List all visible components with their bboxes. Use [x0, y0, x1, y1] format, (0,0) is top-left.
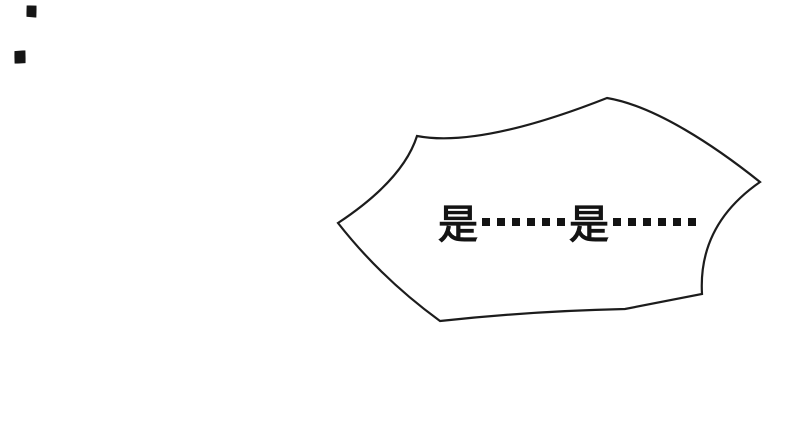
speech-word-second: 是: [569, 202, 609, 248]
ellipsis-dot: [673, 218, 681, 226]
ellipsis-dot: [482, 218, 490, 226]
ellipsis-dot: [628, 218, 636, 226]
ellipsis-dot: [613, 218, 621, 226]
ellipsis-dot: [512, 218, 520, 226]
ellipsis-dot: [557, 218, 565, 226]
ellipsis-dot: [643, 218, 651, 226]
ellipsis-dot: [688, 218, 696, 226]
ellipsis-dot: [542, 218, 550, 226]
ellipsis-dots-first: [482, 218, 565, 226]
ellipsis-dots-second: [613, 218, 696, 226]
speech-word-first: 是: [438, 202, 478, 248]
ellipsis-dot: [527, 218, 535, 226]
comic-panel: 是 是: [0, 0, 800, 428]
ink-speck-top: [26, 5, 38, 19]
speech-text: 是 是: [438, 202, 700, 248]
ellipsis-dot: [658, 218, 666, 226]
ellipsis-dot: [497, 218, 505, 226]
ink-speck-bottom: [14, 50, 27, 65]
